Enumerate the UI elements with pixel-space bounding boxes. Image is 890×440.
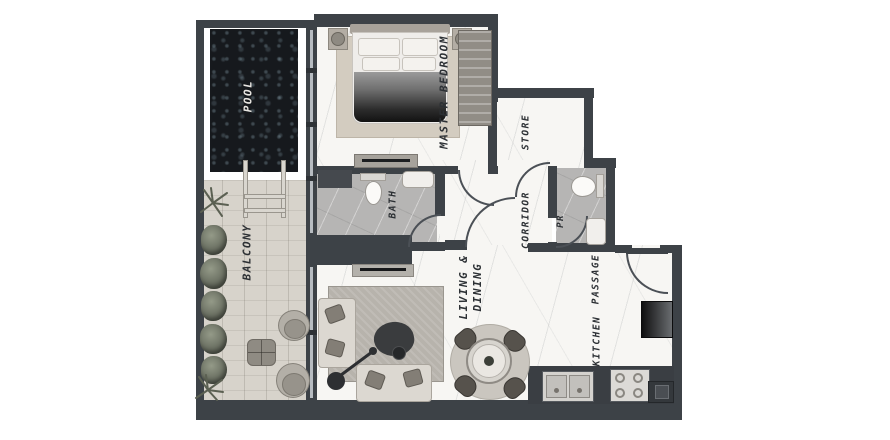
wall-top-pool	[198, 20, 314, 28]
stove-burner	[615, 388, 625, 398]
wall-store-right	[584, 88, 593, 168]
floor-plan: POOL BALCONY MASTER BEDROOM BATH STORE C…	[0, 0, 890, 440]
bath-sink	[402, 171, 434, 188]
room-label-store: STORE	[521, 114, 532, 150]
kitchen-sink-basin	[569, 375, 590, 398]
balcony-lounge-chair	[278, 310, 310, 341]
bed-pillow	[402, 57, 436, 71]
pool-ladder-rung	[244, 208, 286, 213]
wall-pr-right	[606, 158, 615, 250]
stove-burner	[615, 373, 625, 383]
room-label-living-line2: DINING	[471, 255, 485, 320]
kitchen-corner-inset	[655, 385, 669, 399]
entrance-door-leaf	[626, 248, 668, 254]
stove-burner	[633, 388, 643, 398]
window-mullion	[306, 176, 317, 181]
window-mullion	[306, 122, 317, 127]
dresser-top-bar	[362, 159, 410, 162]
table-centerpiece	[484, 356, 494, 366]
room-label-corridor: CORRIDOR	[521, 191, 532, 249]
sink-drain	[577, 388, 582, 393]
room-label-living-dining: LIVING & DINING	[457, 255, 485, 320]
room-label-pool: POOL	[242, 80, 255, 113]
kitchen-sink-basin	[546, 375, 567, 398]
wall-corridor-south-jamb	[445, 240, 467, 250]
room-label-master-bedroom: MASTER BEDROOM	[438, 35, 451, 149]
pr-toilet-tank	[596, 174, 604, 198]
room-label-kitchen: KITCHEN	[592, 316, 603, 367]
window-mullion	[306, 68, 317, 73]
wardrobe	[458, 30, 492, 126]
room-label-pr: PR	[556, 214, 566, 228]
room-label-balcony: BALCONY	[241, 224, 254, 281]
fridge	[641, 301, 673, 338]
stove-burner	[633, 373, 643, 383]
balcony-plant	[200, 324, 227, 354]
floor-lamp-head	[327, 372, 345, 390]
room-label-bath: BATH	[388, 190, 399, 219]
tv-screen-bar	[360, 268, 406, 271]
window-glass-upper	[310, 30, 313, 233]
nightstand-lamp	[331, 32, 345, 46]
wall-bath-chunk	[306, 235, 412, 265]
balcony-plant	[200, 258, 227, 289]
balcony-lounge-chair	[276, 363, 310, 398]
side-table	[392, 346, 406, 360]
bed-duvet	[354, 72, 446, 122]
shower-unit	[318, 170, 352, 188]
room-label-passage: PASSAGE	[591, 254, 602, 305]
bed-pillow	[402, 38, 438, 56]
room-label-living-line1: LIVING &	[457, 255, 471, 320]
bath-toilet-tank	[360, 173, 386, 181]
bed-pillow	[358, 38, 400, 56]
balcony-table	[247, 339, 276, 366]
sink-drain	[554, 388, 559, 393]
pool-ladder-rung	[244, 194, 286, 199]
bed-pillow	[362, 57, 400, 71]
wall-store-top	[488, 88, 594, 98]
wall-bath-right	[435, 166, 445, 216]
pr-sink	[586, 218, 606, 245]
